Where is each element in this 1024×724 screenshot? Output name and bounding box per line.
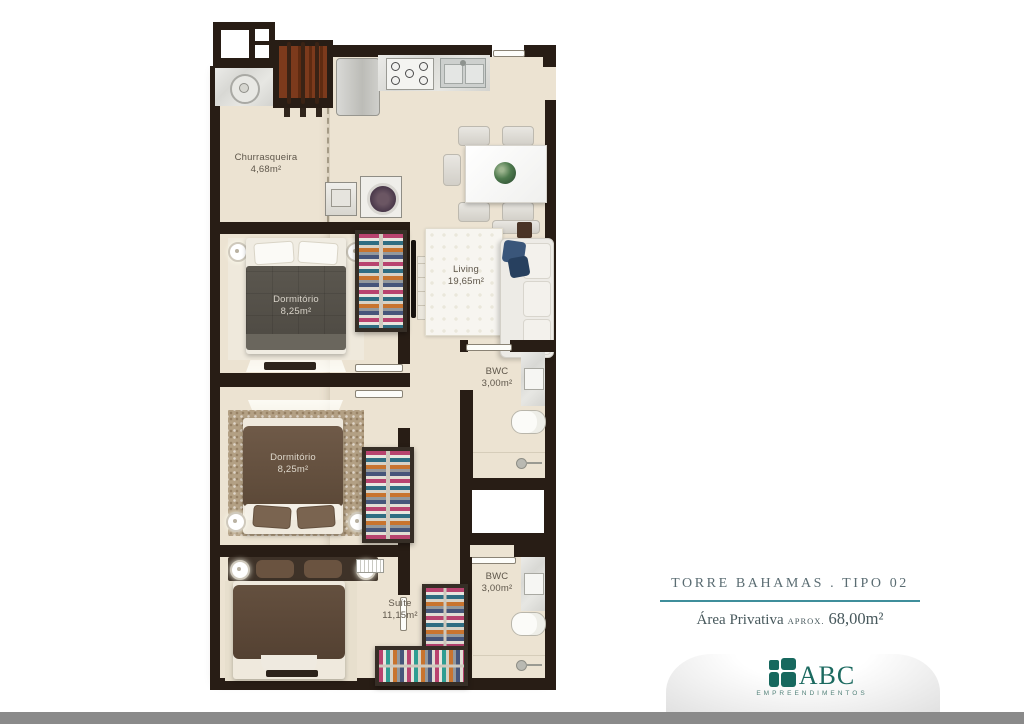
wall-dorm1-dorm2 — [210, 373, 410, 387]
burner — [391, 62, 400, 71]
room-label-living: Living 19,65m² — [433, 264, 499, 288]
room-name: Suíte — [388, 598, 411, 609]
room-label-bwc2: BWC 3,00m² — [471, 571, 523, 595]
grill-leg — [300, 108, 306, 117]
bwc2-vanity — [521, 557, 545, 611]
grill-skewer — [315, 42, 319, 104]
room-label-dorm1: Dormitório 8,25m² — [246, 294, 346, 318]
bwc2-door — [470, 557, 516, 564]
table-centerpiece — [494, 162, 516, 184]
bedside-lamp — [230, 560, 250, 580]
logo-square-icon — [769, 660, 779, 670]
wall-bwc2-top — [460, 545, 470, 557]
pillow — [296, 505, 335, 530]
round-sink-drain — [239, 83, 249, 93]
dorm2-bed — [243, 418, 343, 534]
room-area: 8,25m² — [278, 464, 309, 475]
tank-basin — [331, 189, 351, 207]
shower-arm — [526, 664, 542, 666]
wall-bwc2-top — [514, 545, 556, 557]
laundry-tank — [325, 182, 357, 216]
dorm2-wardrobe — [362, 447, 414, 543]
dorm1-door — [355, 364, 403, 372]
sink-basin — [465, 64, 484, 84]
title-block: TORRE BAHAMAS . TIPO 02 Área Privativa A… — [652, 576, 928, 629]
wall-living-bwc1 — [510, 340, 556, 352]
bedside-lamp — [226, 512, 246, 532]
vanity-basin — [524, 368, 544, 390]
room-label-suite: Suíte 11,15m² — [365, 598, 435, 622]
logo-square-icon — [781, 658, 796, 670]
pillow — [304, 560, 342, 578]
vanity-basin — [524, 573, 544, 595]
room-area: 3,00m² — [482, 378, 513, 389]
entrance-door — [493, 50, 525, 57]
dining-chair — [458, 126, 490, 146]
room-name: Dormitório — [270, 452, 316, 463]
grill-leg — [316, 108, 322, 117]
dining-chair — [458, 202, 490, 222]
bedside-lamp — [228, 242, 248, 262]
suite-bed — [233, 581, 345, 679]
abc-logo-icon — [769, 658, 796, 687]
burner — [391, 76, 400, 85]
grill-skewer — [287, 42, 291, 104]
dining-chair — [502, 202, 534, 222]
room-label-bwc1: BWC 3,00m² — [471, 366, 523, 390]
footer-bar — [0, 712, 1024, 724]
bwc1-vanity — [521, 352, 545, 406]
shaft-window — [221, 30, 249, 58]
area-qualifier: APROX. — [788, 616, 825, 626]
title-divider — [660, 600, 920, 602]
floor-plan: Dormitório 8,25m² Dormitório 8,25m² BWC … — [208, 12, 562, 690]
cooktop — [386, 58, 434, 90]
blanket-fold — [246, 334, 346, 350]
room-label-dorm2: Dormitório 8,25m² — [243, 452, 343, 476]
shaft-window — [255, 29, 269, 41]
shower-arm — [526, 462, 542, 464]
area-label: Área Privativa — [697, 612, 784, 628]
room-area: 3,00m² — [482, 583, 513, 594]
logo-wordmark: ABC — [799, 664, 855, 687]
shaft-box-interior — [472, 490, 544, 533]
shower-floor-line — [473, 452, 545, 453]
wall-suite-top — [210, 545, 398, 557]
grill-leg — [284, 108, 290, 117]
bed-bench — [266, 670, 318, 677]
room-label-churrasqueira: Churrasqueira 4,68m² — [218, 152, 314, 176]
private-area-line: Área Privativa APROX. 68,00m² — [652, 609, 928, 629]
dining-chair — [502, 126, 534, 146]
suite-wardrobe-foot — [375, 646, 468, 686]
dorm2-door — [355, 390, 403, 398]
dining-chair — [443, 154, 461, 186]
logo-subtitle: EMPREENDIMENTOS — [752, 690, 872, 697]
blanket — [233, 585, 345, 659]
logo-square-icon — [769, 672, 779, 687]
throw-pillow — [507, 255, 530, 278]
area-value: 68,00m² — [829, 609, 884, 628]
pillow — [297, 241, 338, 266]
plan-title: TORRE BAHAMAS . TIPO 02 — [652, 576, 928, 592]
room-area: 11,15m² — [382, 610, 418, 621]
room-name: Dormitório — [273, 294, 319, 305]
wall-corridor-bwc1 — [460, 390, 473, 478]
pillow — [252, 505, 291, 530]
room-name: BWC — [486, 571, 509, 582]
kitchen-sink — [440, 58, 486, 88]
shaft-window — [255, 45, 269, 58]
room-area: 8,25m² — [281, 306, 312, 317]
dorm1-wardrobe — [355, 230, 407, 332]
washer-drum — [367, 183, 399, 215]
logo-square-icon — [781, 672, 796, 687]
side-table — [517, 222, 532, 238]
fridge — [336, 58, 380, 116]
floor-balcony-opening — [545, 62, 556, 100]
washing-machine — [360, 176, 402, 218]
room-name: Churrasqueira — [235, 152, 298, 163]
room-name: BWC — [486, 366, 509, 377]
burner — [419, 76, 428, 85]
burner — [419, 62, 428, 71]
faucet — [460, 60, 466, 66]
bwc2-toilet — [511, 612, 546, 636]
tv-panel — [411, 240, 416, 318]
shower-floor-line — [473, 655, 545, 656]
bed-bench — [264, 362, 316, 370]
burner — [405, 69, 414, 78]
radiator — [356, 559, 384, 573]
sink-basin — [444, 64, 463, 84]
room-name: Living — [453, 264, 479, 275]
room-area: 19,65m² — [448, 276, 484, 287]
pillow — [256, 560, 294, 578]
sofa-cushion — [523, 281, 551, 317]
company-logo: ABC EMPREENDIMENTOS — [752, 658, 872, 697]
bwc1-toilet — [511, 410, 546, 434]
room-area: 4,68m² — [251, 164, 282, 175]
pillow — [253, 241, 294, 266]
bwc1-door — [466, 344, 512, 351]
grill-skewer — [301, 42, 305, 104]
wall-corner-return — [543, 45, 556, 67]
